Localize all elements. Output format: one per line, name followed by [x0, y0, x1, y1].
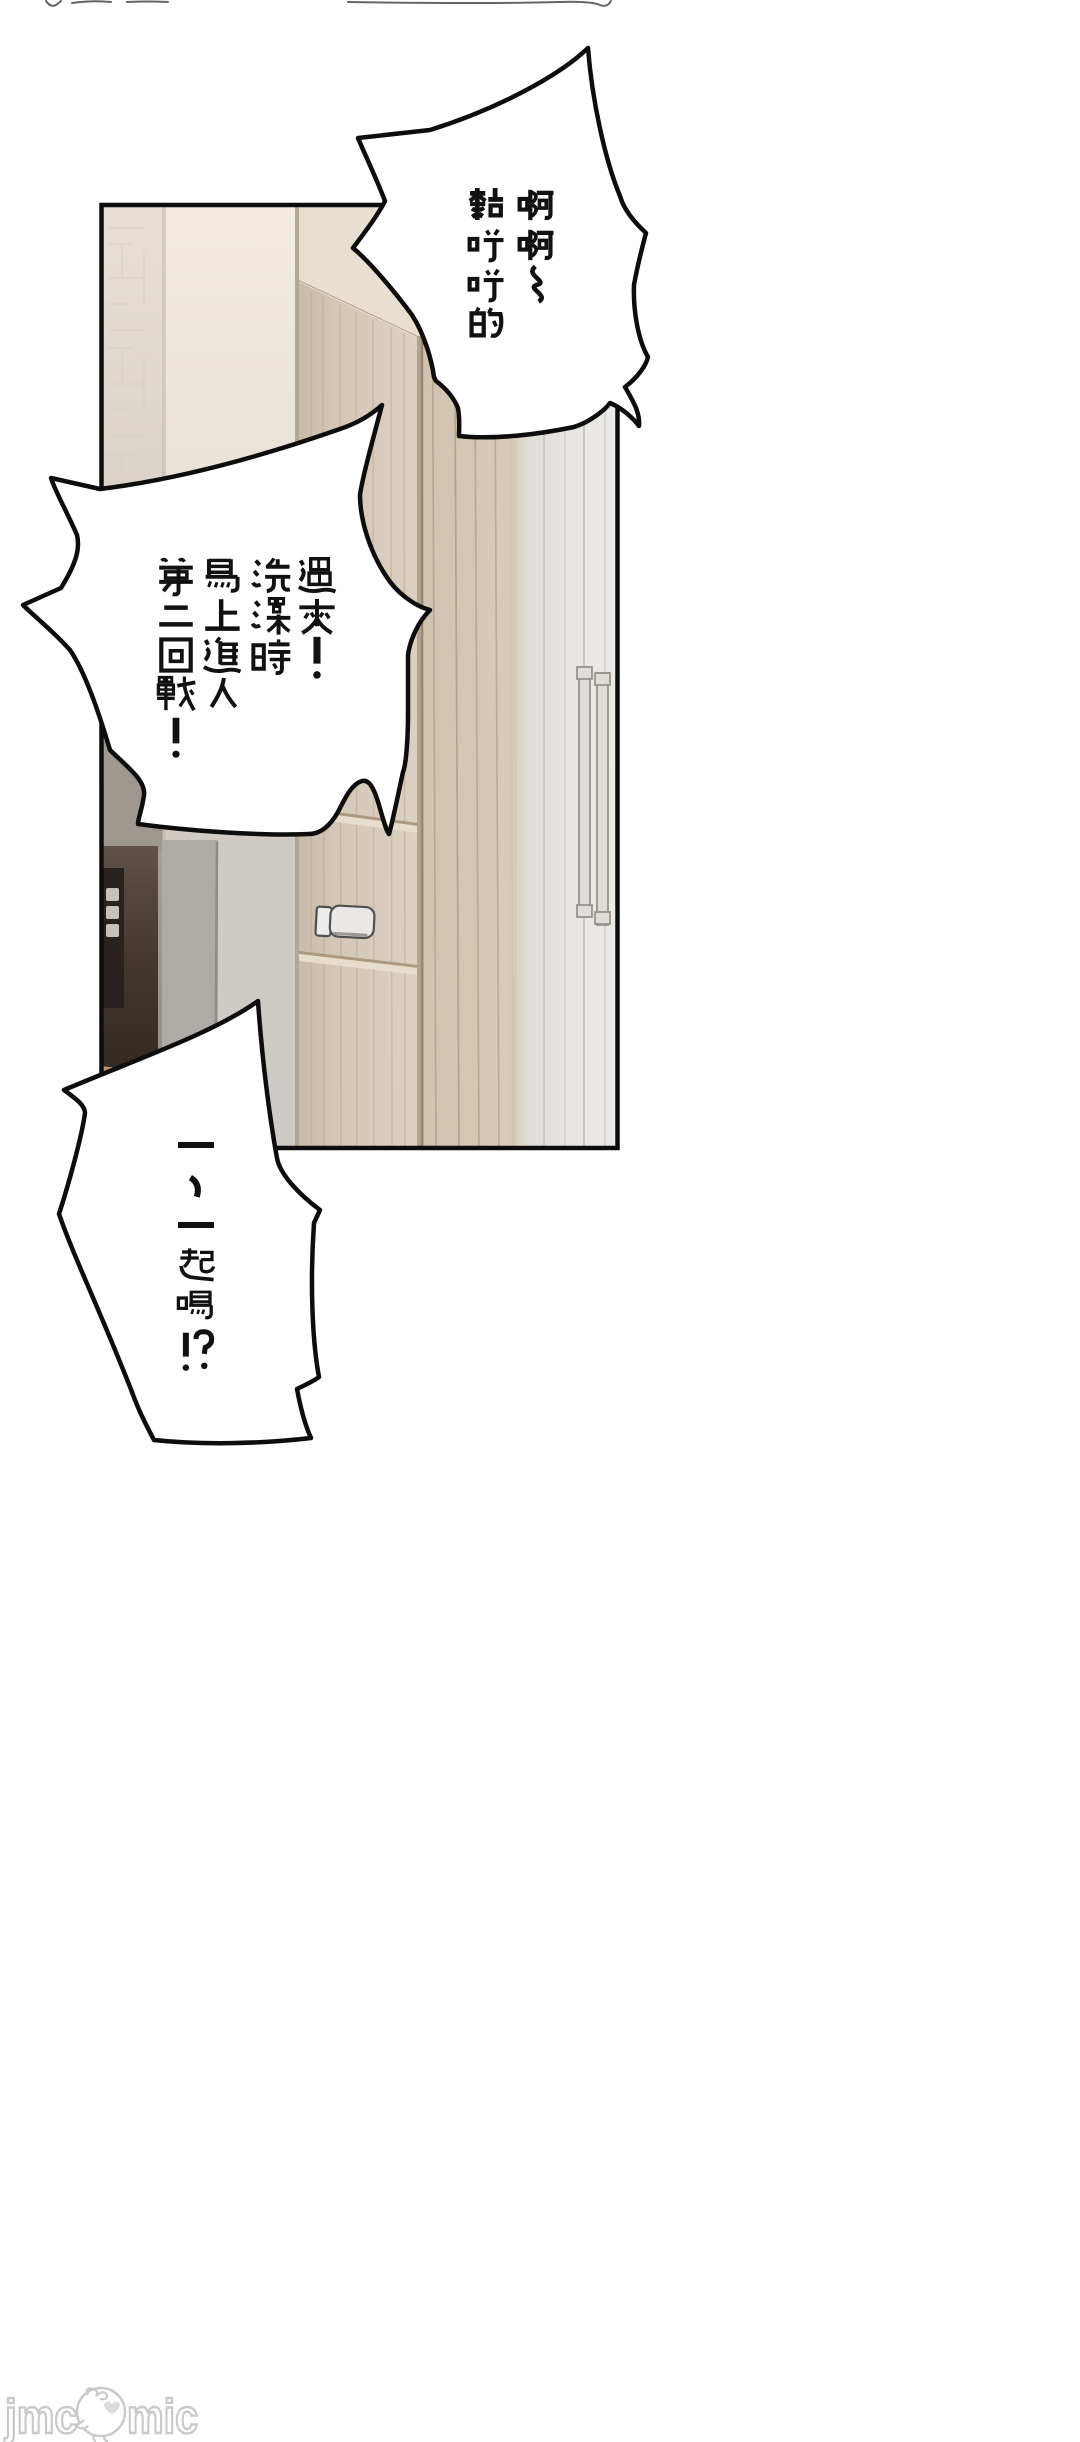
svg-text:jmc: jmc	[4, 2391, 78, 2442]
svg-text:mic: mic	[127, 2391, 198, 2442]
